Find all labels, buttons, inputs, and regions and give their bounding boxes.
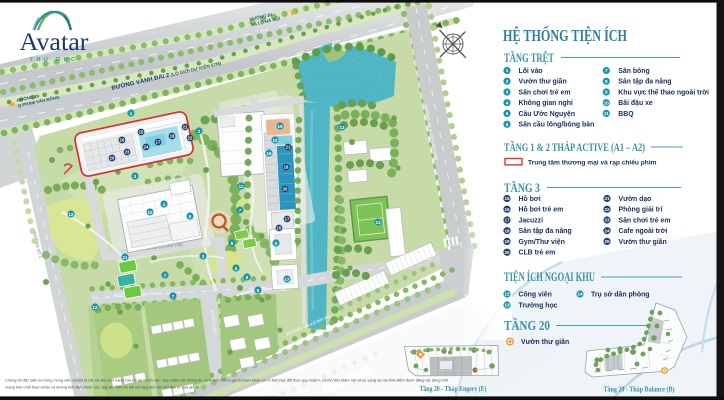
svg-text:11: 11 <box>604 111 609 116</box>
svg-text:THU DUC: THU DUC <box>30 57 79 63</box>
svg-text:20: 20 <box>110 156 115 161</box>
svg-text:21: 21 <box>286 145 291 150</box>
svg-text:Tầng 20 - Tháp Balance (B): Tầng 20 - Tháp Balance (B) <box>604 385 675 394</box>
svg-text:10: 10 <box>273 138 278 143</box>
svg-text:21: 21 <box>604 196 610 201</box>
svg-text:Sân chơi trẻ em: Sân chơi trẻ em <box>619 217 671 224</box>
svg-text:18: 18 <box>504 228 510 233</box>
svg-text:12: 12 <box>93 305 98 310</box>
svg-text:7: 7 <box>605 68 608 73</box>
svg-text:3: 3 <box>506 90 509 95</box>
svg-text:Trung tâm thương mại và rạp ch: Trung tâm thương mại và rạp chiếu phim <box>528 159 657 167</box>
svg-text:CLB trẻ em: CLB trẻ em <box>519 250 556 257</box>
svg-text:BBQ: BBQ <box>618 111 634 118</box>
svg-text:10: 10 <box>148 210 153 215</box>
svg-text:24: 24 <box>604 228 610 233</box>
svg-text:16: 16 <box>504 207 510 212</box>
svg-text:17: 17 <box>285 217 290 222</box>
svg-text:Hồ bơi: Hồ bơi <box>519 194 541 203</box>
svg-text:5: 5 <box>506 111 509 116</box>
svg-text:Chúng tôi đặc biệt coi trọng m: Chúng tôi đặc biệt coi trọng mong việc c… <box>5 378 448 383</box>
svg-text:Avatar: Avatar <box>20 29 90 56</box>
svg-text:12: 12 <box>69 212 74 217</box>
svg-text:16: 16 <box>267 151 272 156</box>
svg-text:18: 18 <box>284 165 289 170</box>
svg-text:9: 9 <box>605 90 608 95</box>
svg-text:12: 12 <box>504 292 510 297</box>
svg-text:13: 13 <box>376 220 381 225</box>
svg-text:Jacuzzi: Jacuzzi <box>519 217 544 224</box>
svg-text:15: 15 <box>139 130 144 135</box>
svg-text:Tầng 20 - Tháp Engery (E): Tầng 20 - Tháp Engery (E) <box>420 384 487 393</box>
svg-text:Vườn thư giãn: Vườn thư giãn <box>521 339 569 346</box>
svg-text:HỆ THỐNG TIỆN ÍCH: HỆ THỐNG TIỆN ÍCH <box>503 25 627 45</box>
svg-text:mang tính chất tham khảo và kh: mang tính chất tham khảo và không thể hi… <box>5 385 200 390</box>
svg-text:Khu vực thể thao ngoài trời: Khu vực thể thao ngoài trời <box>618 88 709 96</box>
svg-text:10: 10 <box>604 100 610 105</box>
svg-text:Sân cầu lông/bóng bàn: Sân cầu lông/bóng bàn <box>519 120 595 129</box>
svg-text:Sân tập đa năng: Sân tập đa năng <box>519 228 572 235</box>
svg-text:Vườn thư giãn: Vườn thư giãn <box>519 79 567 86</box>
svg-text:12: 12 <box>340 125 345 130</box>
svg-text:Phòng giải trí: Phòng giải trí <box>619 207 664 214</box>
svg-text:Không gian nghỉ: Không gian nghỉ <box>519 100 573 107</box>
svg-text:Trụ sở dân phòng: Trụ sở dân phòng <box>591 291 650 298</box>
svg-text:1: 1 <box>506 68 509 73</box>
svg-text:18: 18 <box>170 134 175 139</box>
svg-text:11: 11 <box>239 184 244 189</box>
svg-text:22: 22 <box>604 207 610 212</box>
svg-text:6: 6 <box>506 122 509 127</box>
svg-text:17: 17 <box>156 140 161 145</box>
svg-text:Cafe ngoài trời: Cafe ngoài trời <box>619 228 668 235</box>
svg-text:Bãi đậu xe: Bãi đậu xe <box>618 100 653 107</box>
svg-text:Sân bóng: Sân bóng <box>618 68 649 75</box>
svg-text:TẦNG 1 & 2 THÁP ACTIVE (A1 – A: TẦNG 1 & 2 THÁP ACTIVE (A1 – A2) <box>504 139 645 154</box>
svg-text:Sân chơi trẻ em: Sân chơi trẻ em <box>519 89 571 96</box>
svg-text:TẦNG TRỆT: TẦNG TRỆT <box>504 50 554 65</box>
svg-text:8: 8 <box>605 79 608 84</box>
svg-text:20: 20 <box>283 187 288 192</box>
svg-text:Công viên: Công viên <box>519 291 552 298</box>
svg-text:Lối vào: Lối vào <box>519 67 543 75</box>
svg-text:Cầu Ước Nguyện: Cầu Ước Nguyện <box>519 109 576 118</box>
svg-text:22: 22 <box>188 136 193 141</box>
svg-text:17: 17 <box>504 218 510 223</box>
svg-text:Hồ bơi trẻ em: Hồ bơi trẻ em <box>519 205 564 214</box>
svg-text:Sân tập đa năng: Sân tập đa năng <box>618 79 671 86</box>
svg-text:19: 19 <box>278 124 283 129</box>
svg-text:TIỆN ÍCH NGOẠI KHU: TIỆN ÍCH NGOẠI KHU <box>504 269 595 284</box>
svg-text:19: 19 <box>504 239 510 244</box>
svg-text:23: 23 <box>604 218 610 223</box>
svg-text:15: 15 <box>277 226 282 231</box>
svg-text:11: 11 <box>123 255 128 260</box>
svg-text:TẦNG 20: TẦNG 20 <box>504 318 550 333</box>
svg-text:25: 25 <box>604 239 610 244</box>
svg-text:TẦNG 3: TẦNG 3 <box>504 180 540 195</box>
svg-text:Gym/Thư viện: Gym/Thư viện <box>519 239 565 246</box>
svg-text:Vườn thư giãn: Vườn thư giãn <box>619 239 667 246</box>
svg-text:16: 16 <box>120 138 125 143</box>
svg-text:23: 23 <box>125 150 130 155</box>
svg-text:14: 14 <box>577 292 583 297</box>
svg-text:20: 20 <box>504 250 510 255</box>
svg-text:13: 13 <box>504 303 510 308</box>
svg-text:Vườn dạo: Vườn dạo <box>619 196 652 203</box>
svg-text:4: 4 <box>506 100 509 105</box>
svg-text:2: 2 <box>506 79 509 84</box>
svg-text:17: 17 <box>285 277 290 282</box>
svg-text:21: 21 <box>183 125 188 130</box>
svg-text:Trường học: Trường học <box>519 302 558 309</box>
svg-text:15: 15 <box>504 196 510 201</box>
svg-text:24: 24 <box>144 145 149 150</box>
